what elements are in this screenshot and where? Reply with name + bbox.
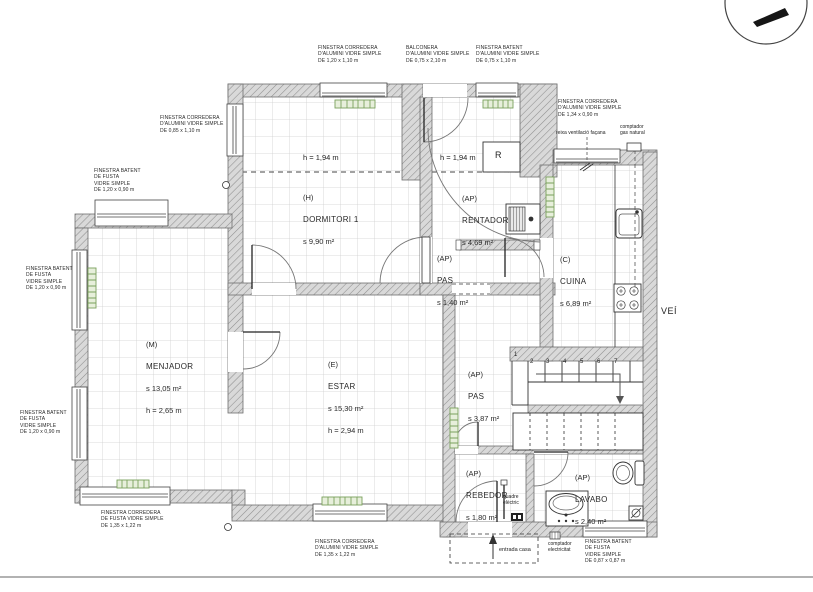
window-dormitori-left <box>227 104 243 156</box>
window-label: FINESTRA BATENT DE FUSTA VIDRE SIMPLE DE… <box>26 266 73 291</box>
stair-step-number: 4 <box>563 359 566 365</box>
floor-plan-page: FINESTRA CORREDERA D'ALUMINI VIDRE SIMPL… <box>0 0 813 592</box>
stair-step-number: 2 <box>530 359 533 365</box>
window-menjador-bottom <box>80 487 170 505</box>
entrance-label: entrada casa <box>499 547 531 553</box>
room-area: s 3,87 m² <box>468 413 499 424</box>
shunt-vent-icon <box>629 506 643 520</box>
room-height: h = 2,65 m <box>146 405 193 416</box>
stair-step-number: 1 <box>514 352 517 358</box>
floor-plan-drawing <box>0 0 813 592</box>
room-area: s 15,30 m² <box>328 403 364 414</box>
room-code: (AP) <box>575 472 608 483</box>
room-code: (C) <box>560 254 591 265</box>
toilet-icon <box>613 461 644 485</box>
radiator-icon <box>450 408 458 448</box>
stair-step-number: 6 <box>597 359 600 365</box>
stair-step-number: 7 <box>614 359 617 365</box>
room-name: LAVABO <box>575 494 608 505</box>
room-code: (M) <box>146 339 193 350</box>
room-name: MENJADOR <box>146 361 193 372</box>
room-area: s 9,90 m² <box>303 236 359 247</box>
room-label-pas-lower: (AP) PAS s 3,87 m² <box>468 358 499 435</box>
room-code: (AP) <box>462 193 509 204</box>
window-label: FINESTRA BATENT D'ALUMINI VIDRE SIMPLE D… <box>476 45 539 64</box>
room-area: s 1,80 m² <box>466 512 508 523</box>
room-label-dormitori: (H) DORMITORI 1 s 9,90 m² <box>303 181 359 258</box>
window-label: FINESTRA BATENT DE FUSTA VIDRE SIMPLE DE… <box>20 410 67 435</box>
ceiling-height-label: h = 1,94 m <box>303 153 339 162</box>
window-label: FINESTRA CORREDERA D'ALUMINI VIDRE SIMPL… <box>160 115 223 134</box>
window-top-corredera <box>320 83 387 97</box>
radiator-icon <box>117 480 149 488</box>
radiator-icon <box>483 100 513 108</box>
electric-panel-icon <box>511 513 523 521</box>
window-left-2 <box>72 387 87 460</box>
stair-step-number: 3 <box>546 359 549 365</box>
window-estar-bottom <box>313 504 387 521</box>
window-menjador-top <box>95 200 168 226</box>
room-name: REBEDOR <box>466 490 508 501</box>
room-name: ESTAR <box>328 381 364 392</box>
room-name: RENTADOR <box>462 215 509 226</box>
room-name: DORMITORI 1 <box>303 214 359 225</box>
window-label: BALCONERA D'ALUMINI VIDRE SIMPLE DE 0,75… <box>406 45 469 64</box>
room-height: h = 2,94 m <box>328 425 364 436</box>
gas-meter-label: comptador gas natural <box>620 124 645 137</box>
window-left-1 <box>72 250 87 330</box>
north-arrow-icon <box>725 0 807 44</box>
room-name: PAS <box>437 275 468 286</box>
window-label: FINESTRA CORREDERA D'ALUMINI VIDRE SIMPL… <box>558 99 621 118</box>
window-cuina <box>554 149 620 163</box>
vent-grille-label: reixa ventilació façana <box>556 130 605 136</box>
room-area: s 4,69 m² <box>462 237 509 248</box>
radiator-icon <box>546 177 554 217</box>
room-area: s 6,89 m² <box>560 298 591 309</box>
washing-machine-icon <box>506 204 540 234</box>
room-area: s 2,40 m² <box>575 516 608 527</box>
room-code: (AP) <box>466 468 508 479</box>
window-top-batent <box>476 83 518 97</box>
room-name: CUINA <box>560 276 591 287</box>
room-name: PAS <box>468 391 499 402</box>
window-label: FINESTRA BATENT DE FUSTA VIDRE SIMPLE DE… <box>585 539 632 564</box>
room-label-estar: (E) ESTAR s 15,30 m² h = 2,94 m <box>328 348 364 447</box>
room-code: (AP) <box>468 369 499 380</box>
window-label: FINESTRA CORREDERA DE FUSTA VIDRE SIMPLE… <box>101 510 164 529</box>
window-label: FINESTRA BATENT DE FUSTA VIDRE SIMPLE DE… <box>94 168 141 193</box>
room-code: (H) <box>303 192 359 203</box>
stove-icon <box>614 284 641 312</box>
room-label-lavabo: (AP) LAVABO s 2,40 m² <box>575 461 608 538</box>
drain-pipe-icon <box>225 524 232 531</box>
room-label-cuina: (C) CUINA s 6,89 m² <box>560 243 591 320</box>
radiator-icon <box>335 100 375 108</box>
window-label: FINESTRA CORREDERA D'ALUMINI VIDRE SIMPL… <box>318 45 381 64</box>
room-label-rebedor: (AP) REBEDOR s 1,80 m² <box>466 457 508 534</box>
room-code: (E) <box>328 359 364 370</box>
gas-meter-icon <box>627 143 641 151</box>
closet-label: R <box>495 150 502 160</box>
room-label-menjador: (M) MENJADOR s 13,05 m² h = 2,65 m <box>146 328 193 427</box>
room-area: s 13,05 m² <box>146 383 193 394</box>
room-label-pas-upper: (AP) PAS s 1,40 m² <box>437 242 468 319</box>
window-label: FINESTRA CORREDERA D'ALUMINI VIDRE SIMPL… <box>315 539 378 558</box>
radiator-icon <box>322 497 362 505</box>
drain-pipe-icon <box>223 182 230 189</box>
stair-step-number: 5 <box>580 359 583 365</box>
electricity-meter-icon <box>550 532 560 539</box>
radiator-icon <box>88 268 96 308</box>
laundry-fixtures <box>506 204 540 234</box>
room-code: (AP) <box>437 253 468 264</box>
room-label-rentador: (AP) RENTADOR s 4,69 m² <box>462 182 509 259</box>
neighbor-label: VEÍ <box>661 306 677 316</box>
electricity-meter-label: comptador electricitat <box>548 541 572 554</box>
ceiling-height-label: h = 1,94 m <box>440 153 476 162</box>
kitchen-sink-icon <box>616 209 642 238</box>
room-area: s 1,40 m² <box>437 297 468 308</box>
